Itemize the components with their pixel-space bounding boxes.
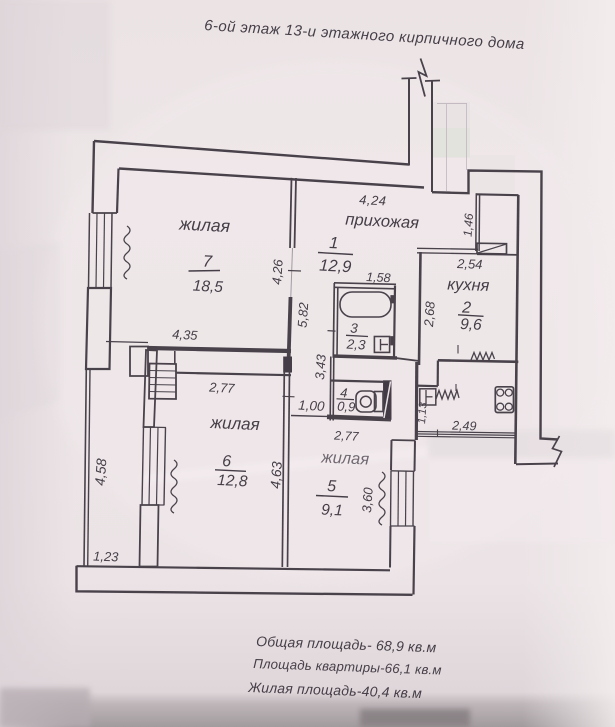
svg-text:жилая: жилая [320, 448, 370, 468]
svg-text:12,9: 12,9 [319, 257, 352, 277]
svg-text:4,58: 4,58 [92, 458, 110, 487]
svg-text:4,35: 4,35 [172, 327, 199, 343]
svg-text:2: 2 [461, 299, 472, 316]
svg-text:2,54: 2,54 [456, 256, 483, 272]
svg-text:жилая: жилая [209, 413, 260, 434]
svg-text:3,43: 3,43 [312, 353, 329, 380]
svg-text:3: 3 [350, 321, 359, 336]
svg-text:7: 7 [202, 253, 213, 271]
svg-text:4,24: 4,24 [359, 192, 387, 208]
svg-text:1,13: 1,13 [416, 401, 430, 424]
svg-text:1,00: 1,00 [298, 398, 326, 414]
svg-text:12,8: 12,8 [217, 472, 248, 490]
svg-text:0,9: 0,9 [337, 399, 356, 415]
svg-text:1: 1 [329, 234, 339, 252]
svg-text:1,58: 1,58 [366, 270, 391, 285]
svg-text:4,26: 4,26 [269, 258, 286, 285]
svg-text:кухня: кухня [447, 276, 490, 295]
svg-text:2,77: 2,77 [208, 379, 236, 395]
svg-text:2,77: 2,77 [333, 428, 360, 443]
svg-text:2,49: 2,49 [451, 418, 477, 433]
svg-text:жилая: жилая [178, 213, 231, 236]
svg-text:2,68: 2,68 [421, 300, 438, 328]
svg-text:9,1: 9,1 [321, 502, 343, 520]
svg-text:18,5: 18,5 [192, 278, 223, 297]
svg-text:6: 6 [222, 453, 232, 470]
svg-text:2,3: 2,3 [345, 336, 366, 352]
svg-text:3,60: 3,60 [359, 486, 376, 513]
svg-text:1,46: 1,46 [461, 213, 477, 238]
svg-text:5,82: 5,82 [295, 301, 312, 328]
svg-text:5: 5 [327, 478, 337, 495]
svg-text:1,23: 1,23 [93, 549, 120, 565]
svg-text:4,63: 4,63 [267, 461, 285, 490]
svg-text:9,6: 9,6 [460, 316, 483, 334]
